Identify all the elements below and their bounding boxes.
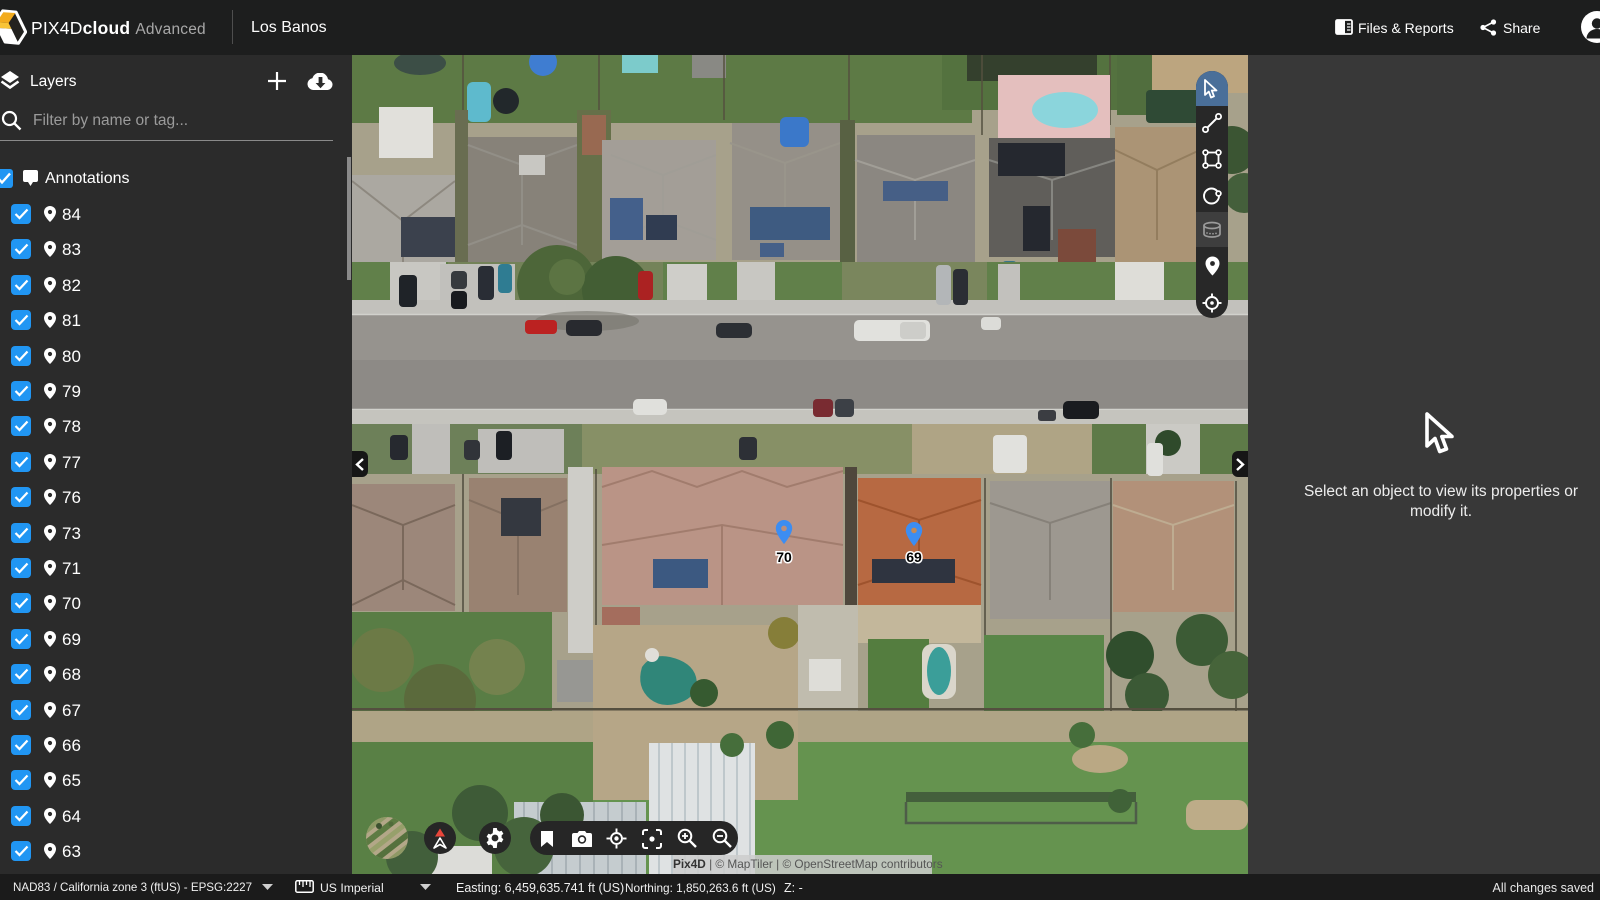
- svg-text:70: 70: [776, 549, 792, 565]
- svg-text:69: 69: [906, 549, 922, 565]
